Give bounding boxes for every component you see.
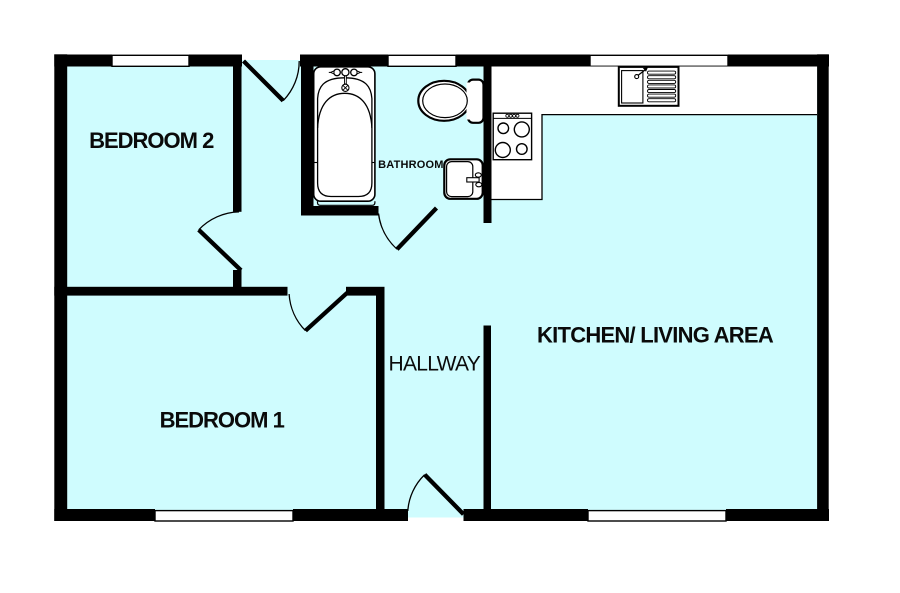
svg-text:BATHROOM: BATHROOM xyxy=(378,159,444,171)
svg-text:BEDROOM 1: BEDROOM 1 xyxy=(160,408,285,433)
svg-text:BEDROOM 2: BEDROOM 2 xyxy=(89,128,214,153)
svg-text:HALLWAY: HALLWAY xyxy=(389,353,481,376)
svg-text:KITCHEN/ LIVING AREA: KITCHEN/ LIVING AREA xyxy=(537,323,774,348)
